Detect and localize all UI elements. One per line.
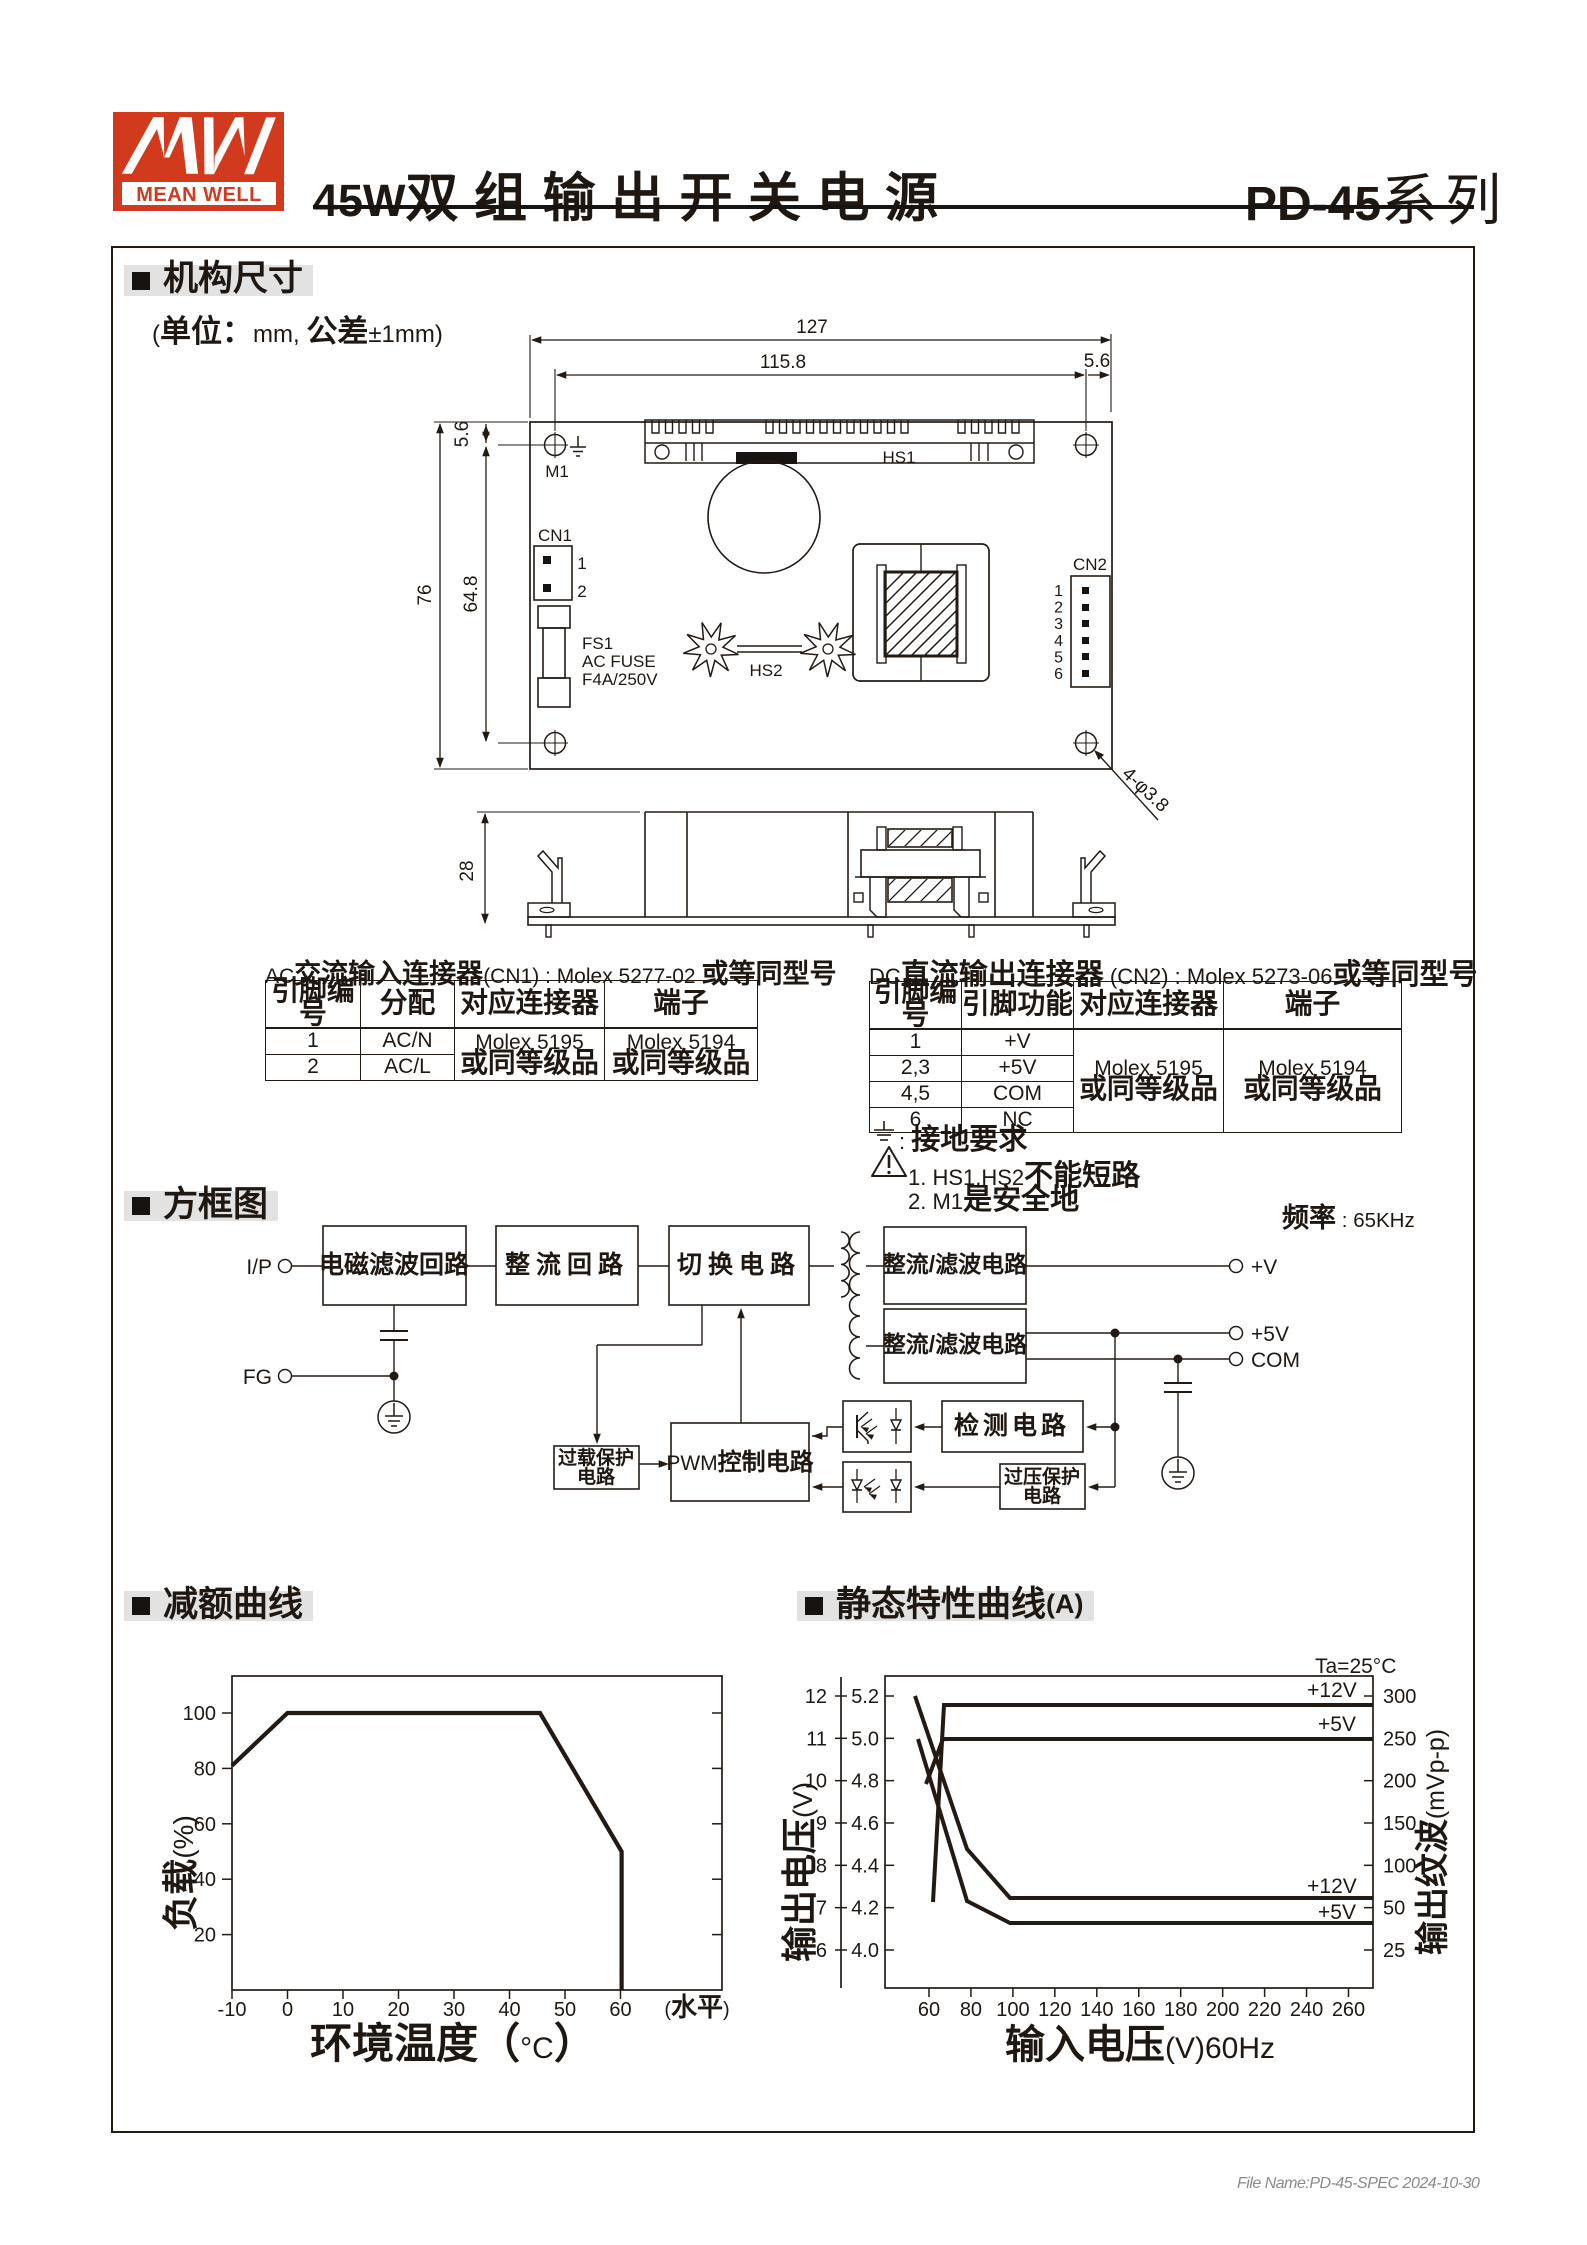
svg-text:3: 3 <box>1054 616 1063 633</box>
svg-text:电路: 电路 <box>1023 1484 1062 1507</box>
svg-text:100: 100 <box>1383 1855 1416 1877</box>
svg-text:FS1: FS1 <box>582 634 613 653</box>
svg-text:200: 200 <box>1206 1999 1239 2021</box>
svg-text:2: 2 <box>577 582 586 601</box>
svg-text:检测电路: 检测电路 <box>954 1411 1070 1440</box>
svg-text:-10: -10 <box>218 1999 247 2021</box>
svg-text:负载(%): 负载(%) <box>160 1815 201 1931</box>
svg-text:115.8: 115.8 <box>760 352 806 373</box>
svg-text:100: 100 <box>996 1999 1029 2021</box>
svg-text:80: 80 <box>194 1758 216 1780</box>
svg-text:+V: +V <box>1251 1256 1277 1279</box>
svg-text:(水平): (水平) <box>664 1992 729 2022</box>
svg-text:60: 60 <box>918 1999 940 2021</box>
svg-text:CN2: CN2 <box>1073 555 1107 574</box>
svg-text:4.4: 4.4 <box>851 1855 879 1877</box>
svg-text:过载保护: 过载保护 <box>558 1446 634 1469</box>
svg-text:140: 140 <box>1080 1999 1113 2021</box>
svg-text:30: 30 <box>443 1999 465 2021</box>
svg-text:1: 1 <box>577 554 586 573</box>
svg-text:+12V: +12V <box>1307 1875 1357 1898</box>
svg-text:电磁滤波回路: 电磁滤波回路 <box>319 1250 470 1279</box>
svg-text:5.6: 5.6 <box>452 421 473 447</box>
svg-text:200: 200 <box>1383 1771 1416 1793</box>
svg-text:AC FUSE: AC FUSE <box>582 652 656 671</box>
svg-text:260: 260 <box>1332 1999 1365 2021</box>
svg-text:12: 12 <box>805 1686 827 1708</box>
svg-text:+12V: +12V <box>1307 1679 1357 1702</box>
svg-text:电路: 电路 <box>577 1465 616 1488</box>
svg-text:输出电压(V): 输出电压(V) <box>779 1782 820 1962</box>
svg-text:10: 10 <box>332 1999 354 2021</box>
svg-text:50: 50 <box>554 1999 576 2021</box>
svg-text:120: 120 <box>1038 1999 1071 2021</box>
svg-text:6: 6 <box>1054 666 1063 683</box>
svg-text:64.8: 64.8 <box>461 576 482 613</box>
svg-text:过压保护: 过压保护 <box>1004 1465 1080 1488</box>
svg-text:整流回路: 整流回路 <box>505 1251 629 1279</box>
svg-text:4.0: 4.0 <box>851 1940 879 1962</box>
svg-text:5: 5 <box>1054 649 1063 666</box>
svg-text:11: 11 <box>806 1728 827 1750</box>
svg-text:240: 240 <box>1290 1999 1323 2021</box>
svg-text:整流/滤波电路: 整流/滤波电路 <box>883 1251 1028 1277</box>
svg-text:76: 76 <box>415 584 436 605</box>
svg-text:5.6: 5.6 <box>1084 351 1110 372</box>
svg-text:220: 220 <box>1248 1999 1281 2021</box>
svg-text:80: 80 <box>960 1999 982 2021</box>
svg-text:150: 150 <box>1383 1813 1416 1835</box>
svg-text:5.0: 5.0 <box>851 1728 879 1750</box>
svg-text:I/P: I/P <box>246 1256 272 1279</box>
svg-text:COM: COM <box>1251 1349 1300 1372</box>
svg-text:环境温度（°C）: 环境温度（°C） <box>310 2020 596 2067</box>
svg-text:输入电压(V)60Hz: 输入电压(V)60Hz <box>1005 2023 1275 2067</box>
svg-text:+5V: +5V <box>1318 1901 1356 1924</box>
svg-text:CN1: CN1 <box>538 526 572 545</box>
svg-text:PWM控制电路: PWM控制电路 <box>666 1448 814 1476</box>
svg-text:Ta=25°C: Ta=25°C <box>1315 1655 1396 1678</box>
svg-text:FG: FG <box>243 1366 272 1389</box>
svg-text:HS2: HS2 <box>749 661 782 680</box>
svg-text:50: 50 <box>1383 1898 1405 1920</box>
svg-text:4.6: 4.6 <box>851 1813 879 1835</box>
svg-text:4.8: 4.8 <box>851 1771 879 1793</box>
svg-text:180: 180 <box>1164 1999 1197 2021</box>
svg-text:60: 60 <box>609 1999 631 2021</box>
svg-text:4: 4 <box>1054 633 1063 650</box>
svg-text:127: 127 <box>796 317 828 338</box>
svg-text:0: 0 <box>282 1999 293 2021</box>
svg-text:28: 28 <box>457 860 478 881</box>
svg-text:HS1: HS1 <box>882 448 915 467</box>
svg-text:1: 1 <box>1054 583 1063 600</box>
svg-text:5.2: 5.2 <box>851 1686 879 1708</box>
svg-text:250: 250 <box>1383 1728 1416 1750</box>
svg-text:+5V: +5V <box>1318 1713 1356 1736</box>
svg-text:切换电路: 切换电路 <box>677 1251 801 1279</box>
svg-text:100: 100 <box>183 1703 216 1725</box>
svg-text:F4A/250V: F4A/250V <box>582 670 658 689</box>
svg-text:输出纹波(mVp-p): 输出纹波(mVp-p) <box>1414 1729 1452 1955</box>
svg-text:20: 20 <box>387 1999 409 2021</box>
svg-text:4-φ3.8: 4-φ3.8 <box>1118 763 1173 816</box>
svg-text:+5V: +5V <box>1251 1323 1289 1346</box>
svg-text:25: 25 <box>1383 1940 1405 1962</box>
svg-text:4.2: 4.2 <box>851 1898 879 1920</box>
svg-text:2: 2 <box>1054 600 1063 617</box>
svg-text:300: 300 <box>1383 1686 1416 1708</box>
svg-text:40: 40 <box>498 1999 520 2021</box>
svg-text:M1: M1 <box>545 462 569 481</box>
svg-text:整流/滤波电路: 整流/滤波电路 <box>883 1331 1028 1357</box>
svg-text:160: 160 <box>1122 1999 1155 2021</box>
